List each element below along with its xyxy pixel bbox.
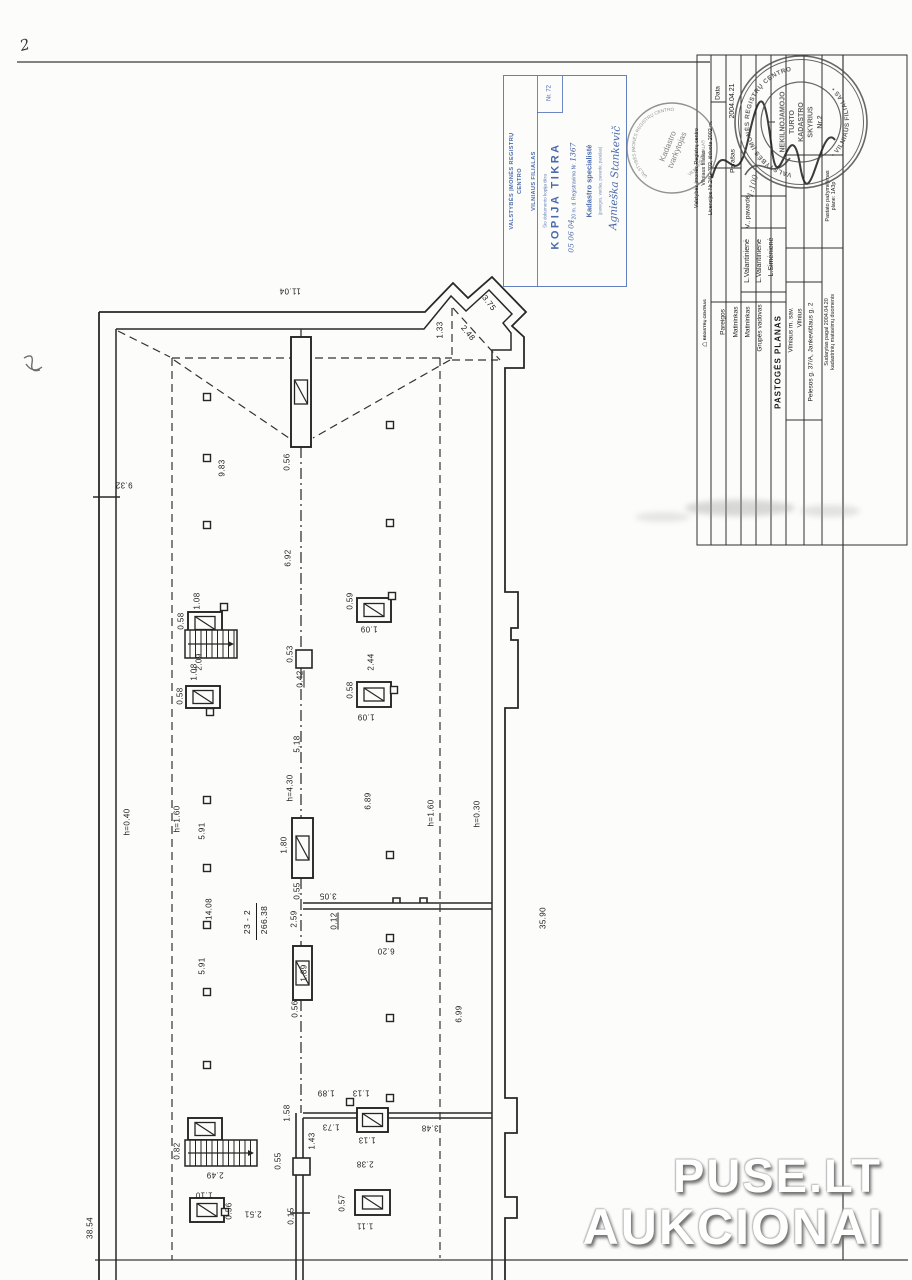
- address-line-2: Vilnius: [796, 308, 803, 327]
- large-stamp-center-text: INEKILNOJAMOJOTURTOKADASTROSKYRIUSNr.2: [767, 91, 824, 153]
- kadastro-skyrius-stamp: VALSTYBĖS ĮMONĖS REGISTRŲ CENTRO • VILNI…: [735, 56, 867, 188]
- dimension-label: h=1.60: [173, 805, 182, 832]
- dimension-label: 2.44: [367, 653, 376, 670]
- dimension-label: 2.49: [206, 1171, 223, 1180]
- dimension-label: 1.89: [300, 964, 309, 981]
- dimension-label: 0.56: [225, 1202, 234, 1219]
- dimension-label: 0.55: [274, 1152, 283, 1169]
- dimension-label: h=4.30: [286, 774, 295, 801]
- scan-smudge: [685, 500, 795, 516]
- handwritten-squiggle: [18, 350, 54, 386]
- registru-centras-logo: ⌂ REGISTRŲ CENTRAS: [699, 299, 709, 347]
- kadastro-tvarkytojas-stamp: VALSTYBĖS ĮMONĖS REGISTRŲ CENTRO VILNIAU…: [613, 89, 730, 206]
- dimension-label: 6.99: [455, 1005, 464, 1022]
- large-stamp-center-line: NEKILNOJAMOJO: [779, 91, 786, 153]
- dimension-label: 1.73: [322, 1123, 339, 1132]
- dimension-label: 1.09: [357, 713, 374, 722]
- large-stamp-center-line: Nr.2: [817, 115, 824, 128]
- dimension-label: 5.91: [198, 957, 207, 974]
- dimension-label: 0.56: [283, 453, 292, 470]
- dimension-label: 0.15: [287, 1207, 296, 1224]
- role-2: Matininkas: [744, 306, 751, 337]
- role-3: Grupės vadovas: [756, 304, 763, 351]
- document-title: PASTOGĖS PLANAS: [773, 315, 782, 409]
- dimension-label: 1.13: [358, 1136, 375, 1145]
- dimension-label: h=0.30: [473, 800, 482, 827]
- dimension-label: 6.89: [364, 792, 373, 809]
- round-stamps: VALSTYBĖS ĮMONĖS REGISTRŲ CENTRO VILNIAU…: [0, 0, 912, 300]
- dimension-label: 9.32: [115, 481, 132, 490]
- dimension-label: 1.33: [436, 321, 445, 338]
- dimension-label: h=1.60: [427, 799, 436, 826]
- scan-smudge: [635, 512, 690, 522]
- scanned-cadastral-plan-page: 11.041.333.752.489.830.569.326.921.080.5…: [0, 0, 912, 1280]
- dimension-label: 3.48: [421, 1124, 438, 1133]
- dimension-label: 5.91: [198, 822, 207, 839]
- address-line-3: Pelesos g. 37/A, Jankevičiaus g. 2: [807, 302, 814, 401]
- dimension-label: 1.08: [193, 592, 202, 609]
- logo-label: REGISTRŲ CENTRAS: [702, 299, 707, 340]
- dimension-label: 35.90: [539, 907, 548, 929]
- dimension-label: 0.82: [173, 1142, 182, 1159]
- dimension-label: 1.08: [190, 663, 199, 680]
- building-icon: ⌂: [699, 341, 709, 346]
- dimension-label: 2.59: [290, 910, 299, 927]
- watermark-line-2: AUKCIONAI: [583, 1198, 884, 1256]
- dimension-label: 1.13: [352, 1089, 369, 1098]
- dimension-label: 0.58: [346, 681, 355, 698]
- dimension-label: 0.58: [176, 687, 185, 704]
- scan-smudge: [800, 505, 860, 517]
- svg-text:VILNIAUS FILIALAS: VILNIAUS FILIALAS: [686, 138, 711, 180]
- room-area-fraction-bar: [256, 903, 257, 940]
- dimension-label: h=0.40: [123, 808, 132, 835]
- dimension-label: 0.42: [296, 670, 305, 687]
- dimension-label: 9.83: [218, 459, 227, 476]
- large-stamp-center-line: I: [767, 121, 777, 124]
- dimension-label: 1.80: [280, 836, 289, 853]
- dimension-label: 2.51: [244, 1210, 261, 1219]
- address-line-1: Vilniaus m. sav.: [787, 308, 794, 353]
- dimension-label: 14.08: [205, 898, 214, 920]
- large-stamp-center-line: SKYRIUS: [808, 106, 815, 137]
- dimension-label: 5.18: [293, 735, 302, 752]
- role-1: Matininkas: [732, 306, 739, 337]
- dimension-label: 38.54: [86, 1217, 95, 1239]
- dimension-label: 2.38: [356, 1160, 373, 1169]
- dimension-label: 1.89: [317, 1089, 334, 1098]
- dimension-label: 0.59: [346, 592, 355, 609]
- dimension-label: 1.09: [360, 625, 377, 634]
- large-stamp-center-line: KADASTRO: [798, 102, 805, 142]
- dimension-label: 6.20: [377, 947, 394, 956]
- large-stamp-center-line: TURTO: [789, 109, 796, 134]
- room-number-label: 23 - 2: [243, 910, 253, 934]
- dimension-label: 2.48: [459, 324, 477, 343]
- dimension-label: 0.12: [330, 912, 339, 929]
- dimension-label: 0.56: [291, 1000, 300, 1017]
- dimension-label: 0.55: [293, 882, 302, 899]
- dimension-label: 0.58: [177, 612, 186, 629]
- dimension-label: 1.10: [195, 1191, 212, 1200]
- dimension-label: 1.11: [357, 1222, 374, 1231]
- column-header-pareigos: Pareigos: [719, 309, 726, 335]
- dimension-label: 0.57: [338, 1194, 347, 1211]
- dimension-label: 0.53: [286, 645, 295, 662]
- dimension-label: 3.05: [319, 892, 336, 901]
- made-from-note: Sudarytas pagal 2004.04.20 kadastrinių m…: [824, 294, 836, 370]
- dimension-label: 1.43: [308, 1132, 317, 1149]
- room-area-label: 266.38: [260, 906, 270, 934]
- dimension-label: 1.58: [283, 1104, 292, 1121]
- small-stamp-ring-bottom: VILNIAUS FILIALAS: [686, 138, 711, 180]
- watermark-line-1: PUSE.LT: [673, 1148, 882, 1203]
- dimension-label: 6.92: [284, 549, 293, 566]
